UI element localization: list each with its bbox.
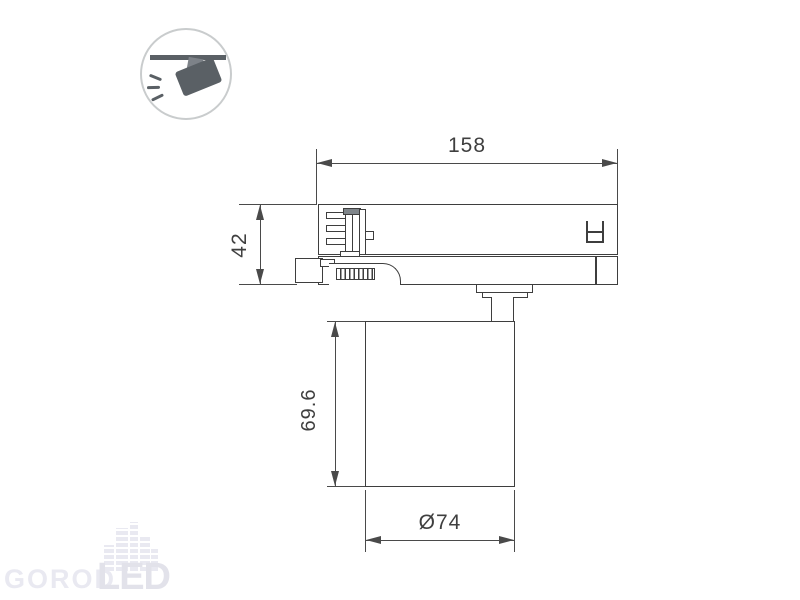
base-divider-line (595, 256, 597, 285)
dim-arrow-right-icon (602, 159, 617, 167)
contact-tab (365, 231, 374, 240)
dim-track-length-line (316, 163, 618, 164)
dim-body-height-ext-bottom (327, 486, 365, 487)
track-light-mount-badge (140, 28, 232, 120)
dim-arrow-up-icon (331, 322, 339, 337)
dim-body-height-line (335, 321, 336, 487)
light-ray-icon (147, 86, 160, 89)
watermark: GOROD LED (0, 515, 180, 600)
dim-arrow-right-icon (499, 536, 514, 544)
contact-carrier-bar (345, 209, 353, 254)
dim-body-diameter-label: Ø74 (365, 511, 515, 535)
dim-arrow-up-icon (256, 205, 264, 220)
dim-arrow-left-icon (317, 159, 332, 167)
dim-track-length-label: 158 (316, 134, 618, 158)
dim-body-diameter-line (365, 540, 515, 541)
technical-drawing-page: 158 42 69.6 Ø74 GOROD LED (0, 0, 800, 600)
dim-arrow-down-icon (256, 269, 264, 284)
light-ray-icon (149, 74, 162, 82)
dim-body-height-label: 69.6 (298, 365, 320, 455)
light-ray-icon (151, 93, 164, 101)
dim-arrow-left-icon (366, 536, 381, 544)
spotlight-head-icon (175, 57, 223, 96)
phase-selector-slider (336, 268, 375, 280)
dim-arrow-down-icon (331, 471, 339, 486)
watermark-led-text: LED (97, 556, 170, 599)
side-latch-block (295, 258, 323, 283)
lock-clip (586, 241, 604, 243)
dim-adapter-height-label: 42 (229, 205, 251, 285)
lock-clip (586, 231, 604, 233)
pivot-stem (491, 297, 514, 323)
lamp-body-outline (365, 321, 515, 487)
